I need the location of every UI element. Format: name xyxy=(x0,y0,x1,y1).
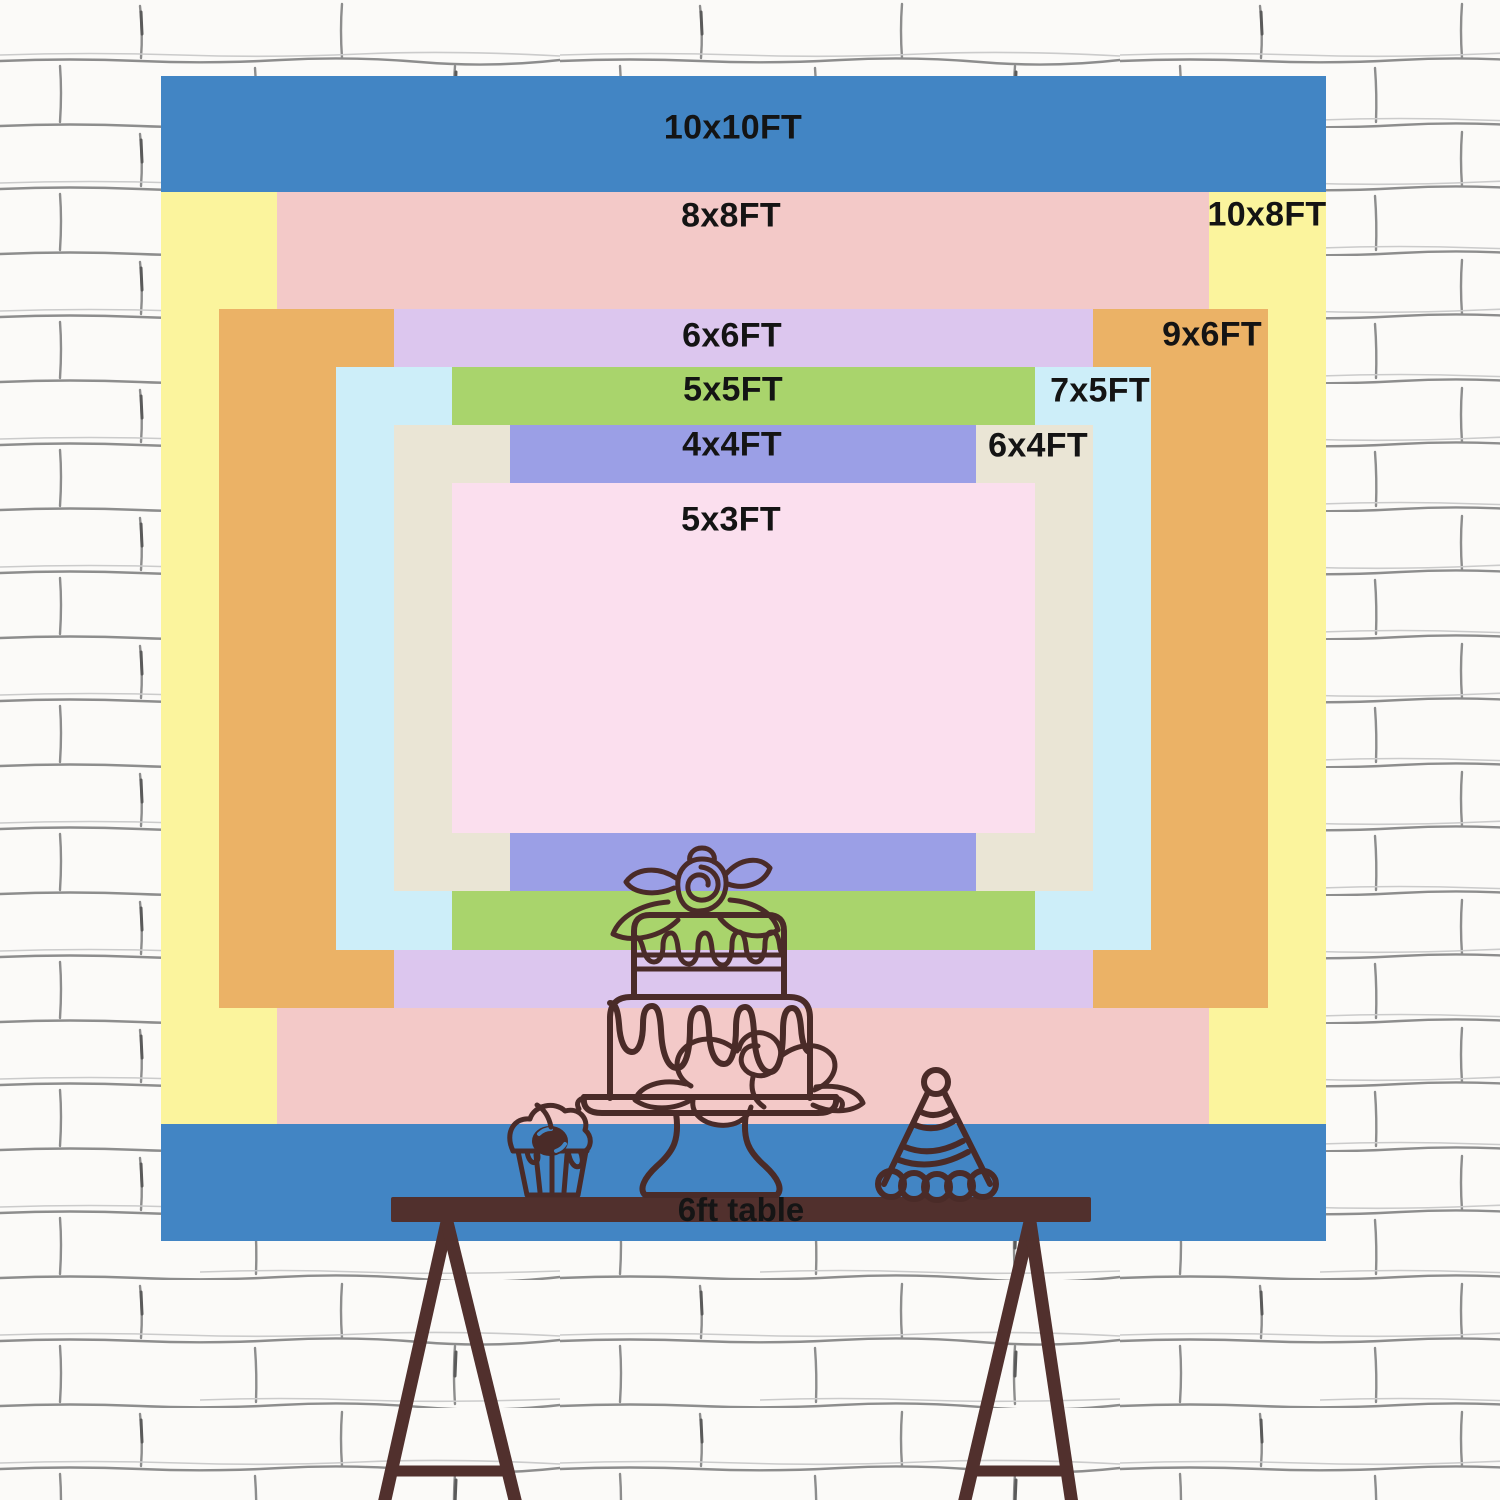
label-5x3ft: 5x3FT xyxy=(681,501,781,540)
cake-icon xyxy=(578,848,863,1195)
label-6x6ft: 6x6FT xyxy=(682,317,782,356)
table-legs xyxy=(384,1222,1072,1500)
cupcake-icon xyxy=(510,1105,591,1195)
label-6x4ft: 6x4FT xyxy=(988,427,1088,466)
backdrop-size-chart: 10x10FT 10x8FT 8x8FT 9x6FT 6x6FT 7x5FT 5… xyxy=(0,0,1500,1500)
table-label: 6ft table xyxy=(678,1191,805,1229)
label-9x6ft: 9x6FT xyxy=(1162,316,1262,355)
label-7x5ft: 7x5FT xyxy=(1050,372,1150,411)
label-5x5ft: 5x5FT xyxy=(683,371,783,410)
label-8x8ft: 8x8FT xyxy=(681,197,781,236)
label-4x4ft: 4x4FT xyxy=(682,426,782,465)
label-10x8ft: 10x8FT xyxy=(1208,196,1327,235)
cherry xyxy=(533,1127,567,1155)
label-10x10ft: 10x10FT xyxy=(664,109,802,148)
party-hat-icon xyxy=(878,1070,996,1200)
